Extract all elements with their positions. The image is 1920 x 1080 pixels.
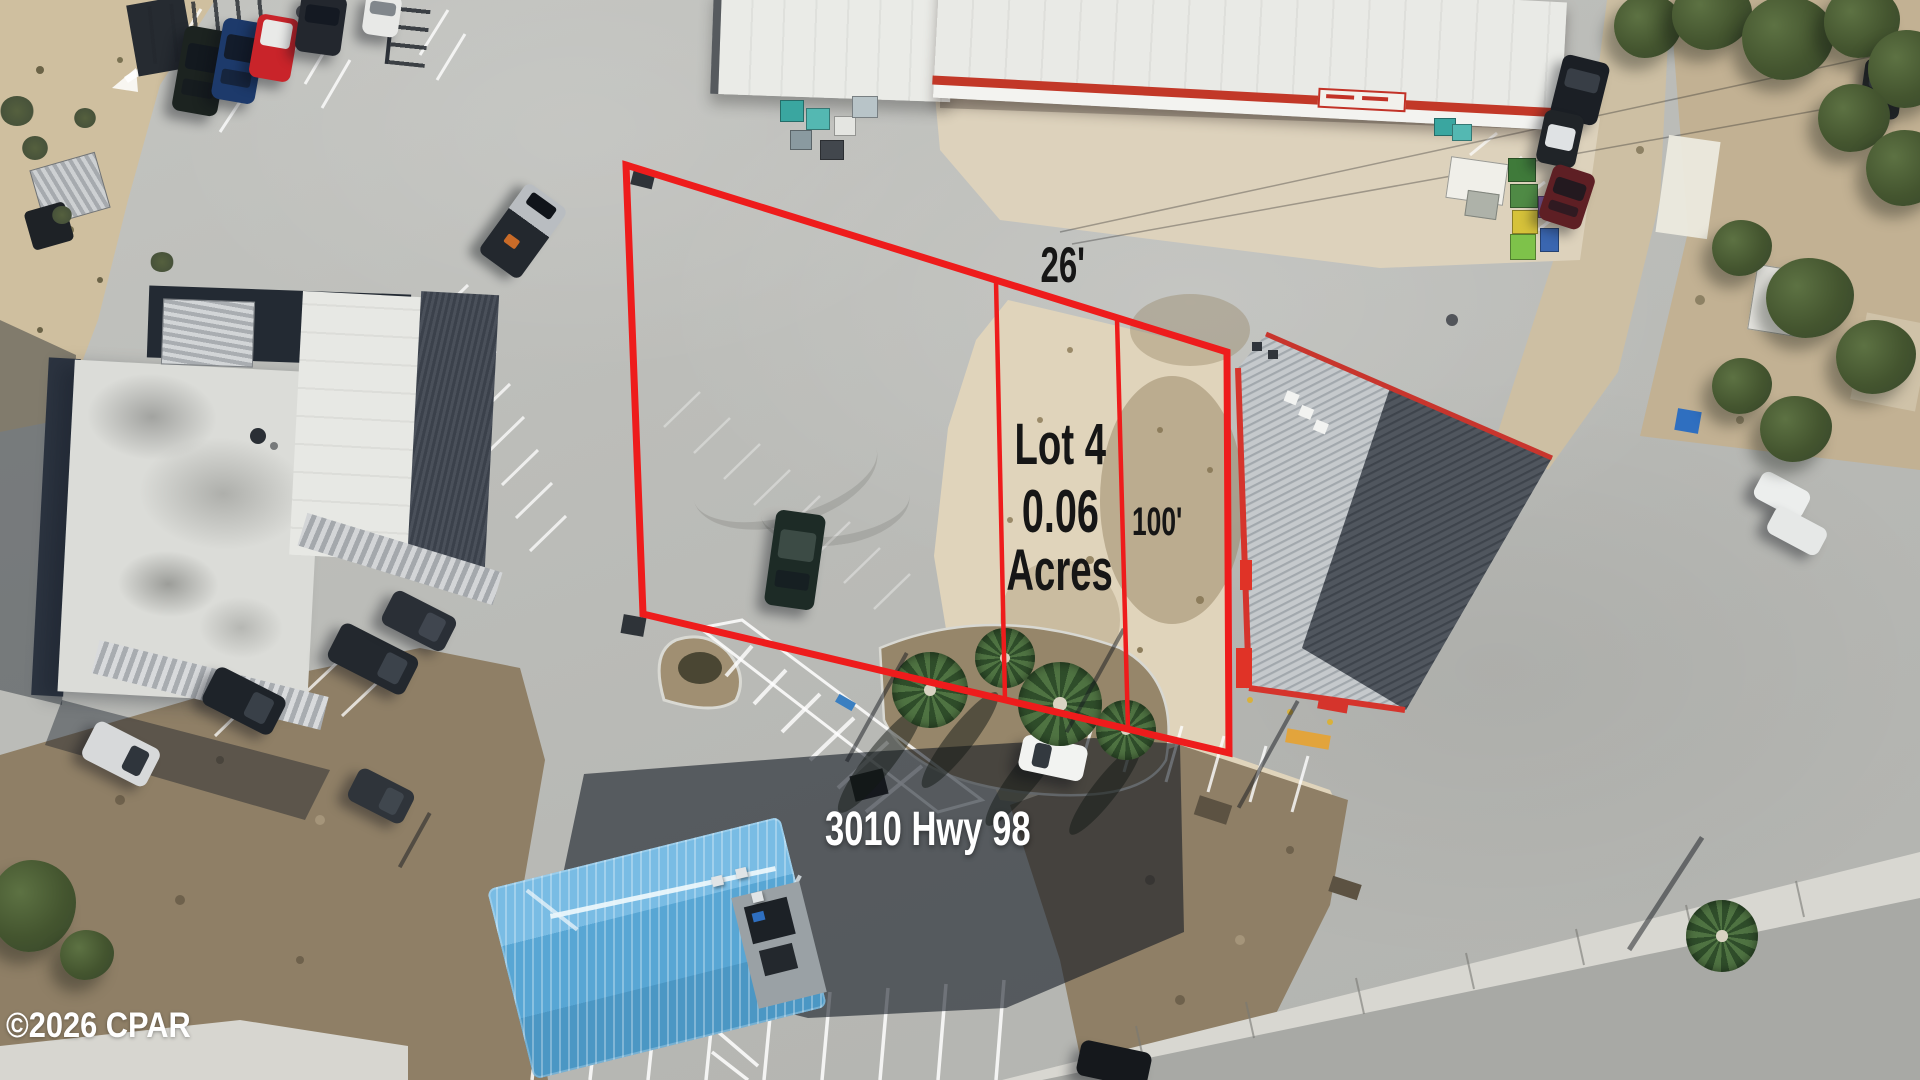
bush bbox=[22, 136, 48, 160]
building-right bbox=[1236, 334, 1552, 750]
parked-car bbox=[361, 0, 402, 38]
pallet-stack bbox=[790, 130, 812, 150]
utility-pad bbox=[621, 614, 647, 637]
manhole bbox=[1446, 314, 1458, 326]
label-address: 3010 Hwy 98 bbox=[758, 806, 1098, 854]
watermark: ©2026 CPAR bbox=[6, 1008, 266, 1043]
crate-stack bbox=[1540, 228, 1559, 252]
crate-stack bbox=[1508, 158, 1536, 182]
palm-tree bbox=[1018, 662, 1102, 746]
building-left-dark-roof-section bbox=[407, 291, 499, 569]
roof-vent bbox=[250, 428, 266, 444]
crate-stack bbox=[1510, 184, 1538, 208]
pallet-stack bbox=[852, 96, 878, 118]
small-shed bbox=[1464, 190, 1499, 220]
pallet-stack bbox=[834, 116, 856, 136]
label-lot-size-unit: Acres bbox=[950, 542, 1170, 600]
label-frontage-dimension: 26' bbox=[1003, 240, 1123, 290]
palm-tree bbox=[1686, 900, 1758, 972]
bush bbox=[0, 96, 34, 126]
palm-tree bbox=[892, 652, 968, 728]
blue-tarp bbox=[1674, 408, 1701, 434]
bush bbox=[150, 252, 174, 272]
aerial-photo: 26' Lot 4 0.06 Acres 100' 3010 Hwy 98 ©2… bbox=[0, 0, 1920, 1080]
pallet-stack bbox=[780, 100, 804, 122]
pallet-stack bbox=[806, 108, 830, 130]
bush bbox=[52, 206, 72, 224]
palm-tree bbox=[1096, 700, 1156, 760]
pallet-stack bbox=[820, 140, 844, 160]
label-lot-name: Lot 4 bbox=[950, 416, 1170, 474]
building-top-center bbox=[710, 0, 954, 102]
crate-stack bbox=[1512, 210, 1538, 234]
metal-shed bbox=[161, 298, 255, 367]
bush bbox=[74, 108, 96, 128]
parked-car bbox=[294, 0, 348, 57]
label-depth-dimension: 100' bbox=[1097, 502, 1217, 542]
pallet-stack bbox=[1452, 124, 1472, 141]
crate-stack bbox=[1510, 234, 1536, 260]
